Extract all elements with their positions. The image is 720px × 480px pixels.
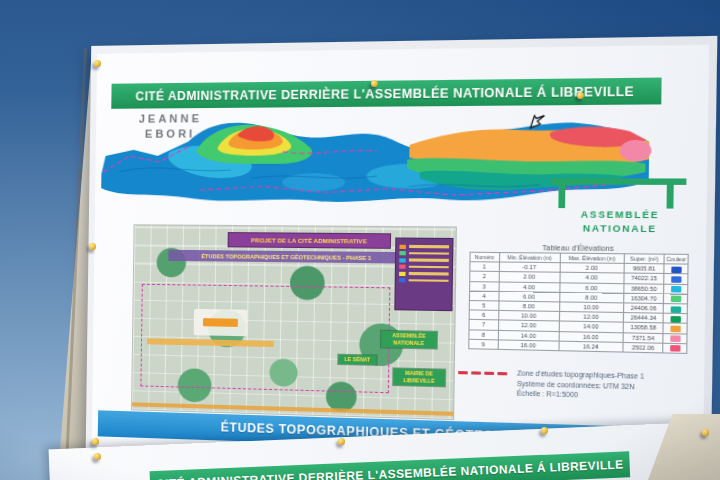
cell-min-elevation: 16.00 bbox=[498, 340, 559, 351]
cell-numero: 1 bbox=[470, 262, 499, 272]
cell-couleur bbox=[664, 304, 688, 314]
cell-numero: 8 bbox=[469, 329, 498, 339]
color-swatch bbox=[671, 296, 681, 303]
assemblee-bracket-leg-left bbox=[558, 178, 565, 208]
poster2-title-banner: CITÉ ADMINISTRATIVE DERRIÈRE L'ASSEMBLÉE… bbox=[150, 451, 631, 480]
poster-sheet-1: CITÉ ADMINISTRATIVE DERRIÈRE L'ASSEMBLÉE… bbox=[92, 45, 710, 474]
sitemap-label-mairie: MAIRIE DE LIBREVILLE bbox=[393, 368, 445, 386]
cell-numero: 7 bbox=[469, 320, 498, 330]
photo-of-signboard: CITÉ ADMINISTRATIVE DERRIÈRE L'ASSEMBLÉE… bbox=[0, 0, 720, 480]
cell-couleur bbox=[664, 284, 688, 294]
cell-superficie: 16304.70 bbox=[623, 293, 664, 303]
cell-max-elevation: 16.24 bbox=[559, 341, 623, 352]
col-max: Max. Élévation (m) bbox=[560, 253, 624, 263]
pushpin bbox=[89, 243, 96, 250]
pushpin bbox=[338, 438, 345, 445]
cell-numero: 9 bbox=[469, 339, 498, 349]
pushpin bbox=[702, 429, 709, 436]
cell-numero: 6 bbox=[469, 310, 498, 320]
col-couleur: Couleur bbox=[665, 254, 689, 264]
color-swatch bbox=[670, 326, 680, 333]
building-card bbox=[194, 309, 248, 336]
cell-couleur bbox=[664, 323, 688, 333]
color-swatch bbox=[671, 286, 681, 293]
cell-numero: 4 bbox=[469, 291, 498, 301]
cell-superficie: 2502.06 bbox=[623, 342, 664, 353]
red-dashed-line-icon bbox=[458, 371, 511, 375]
north-arrow-icon bbox=[527, 113, 547, 132]
sitemap-title-text: PROJET DE LA CITÉ ADMINISTRATIVE bbox=[251, 237, 367, 244]
cell-couleur bbox=[664, 264, 688, 274]
cell-couleur bbox=[664, 274, 688, 284]
color-swatch bbox=[670, 345, 680, 352]
assemblee-nationale-label: ASSEMBLÉE NATIONALE bbox=[555, 208, 686, 237]
sitemap-subtitle-text: ÉTUDES TOPOGRAPHIQUES ET GÉOTECHNIQUES -… bbox=[201, 253, 371, 261]
sitemap-label-assemblee: ASSEMBLÉE NATIONALE bbox=[381, 331, 437, 349]
pushpin bbox=[371, 80, 378, 87]
pushpin bbox=[92, 438, 99, 445]
cell-superficie: 38650.50 bbox=[623, 283, 664, 293]
cell-numero: 5 bbox=[469, 301, 498, 311]
map-legend: Zone d'études topographiques-Phase 1 Sys… bbox=[458, 367, 695, 403]
pushpin bbox=[541, 427, 548, 434]
satellite-site-map: PROJET DE LA CITÉ ADMINISTRATIVE ÉTUDES … bbox=[132, 225, 456, 419]
cell-couleur bbox=[664, 294, 688, 304]
elevation-table: Tableau d'Élévations Numéro Min. Élévati… bbox=[468, 243, 689, 354]
col-min: Min. Élévation (m) bbox=[499, 253, 560, 263]
cell-couleur bbox=[663, 333, 687, 343]
color-swatch bbox=[671, 266, 681, 273]
cell-numero: 2 bbox=[470, 272, 499, 282]
sitemap-subtitle-banner: ÉTUDES TOPOGRAPHIQUES ET GÉOTECHNIQUES -… bbox=[168, 250, 405, 264]
sitemap-title-banner: PROJET DE LA CITÉ ADMINISTRATIVE bbox=[228, 232, 392, 249]
pushpin bbox=[94, 60, 101, 67]
color-swatch bbox=[670, 316, 680, 323]
cell-couleur bbox=[664, 313, 688, 323]
col-super: Super. (m²) bbox=[624, 254, 665, 264]
cell-couleur bbox=[663, 343, 687, 353]
poster1-title-text: CITÉ ADMINISTRATIVE DERRIÈRE L'ASSEMBLÉE… bbox=[135, 84, 634, 103]
elevation-table-body: 1 -0.17 2.00 9605.81 2 2.00 4.00 bbox=[469, 262, 688, 354]
col-numero: Numéro bbox=[470, 252, 499, 262]
cell-numero: 3 bbox=[470, 281, 499, 291]
building-chip-orange bbox=[203, 318, 238, 327]
cell-superficie: 74022.15 bbox=[624, 273, 665, 283]
color-swatch bbox=[670, 306, 680, 313]
sitemap-legend-box bbox=[394, 237, 453, 311]
sign-board: CITÉ ADMINISTRATIVE DERRIÈRE L'ASSEMBLÉE… bbox=[85, 36, 718, 480]
assemblee-line2: NATIONALE bbox=[555, 222, 686, 237]
cell-superficie: 9605.81 bbox=[624, 264, 665, 274]
pushpin bbox=[577, 92, 584, 99]
color-swatch bbox=[671, 276, 681, 283]
assemblee-bracket-leg-right bbox=[667, 178, 674, 208]
pushpin bbox=[94, 453, 101, 460]
assemblee-line1: ASSEMBLÉE bbox=[555, 208, 686, 223]
sitemap-label-senat: LE SÉNAT bbox=[338, 355, 376, 365]
elevation-topographic-map bbox=[99, 108, 653, 211]
poster2-title-text: CITÉ ADMINISTRATIVE DERRIÈRE L'ASSEMBLÉE… bbox=[156, 457, 624, 480]
color-swatch bbox=[670, 336, 680, 343]
